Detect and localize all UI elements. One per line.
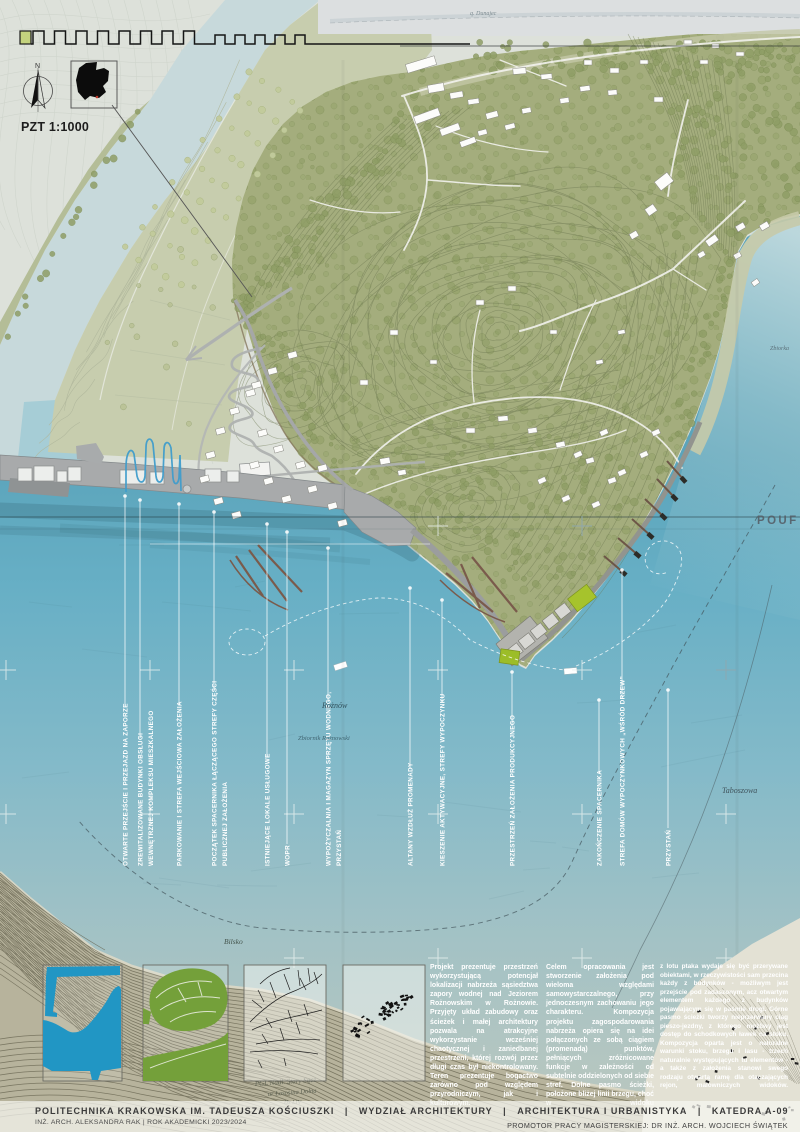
svg-text:ZREWITALIZOWANE BUDYNKI OBSŁUG: ZREWITALIZOWANE BUDYNKI OBSŁUGI — [137, 733, 144, 866]
svg-text:Zbiornik Rożnowski: Zbiornik Rożnowski — [298, 735, 350, 742]
svg-text:PZT 1:1000: PZT 1:1000 — [21, 120, 89, 134]
svg-text:PARKOWANIE I STREFA WEJŚCIOWA: PARKOWANIE I STREFA WEJŚCIOWA ZAŁOŻENIA — [174, 701, 183, 866]
svg-text:OTWARTE PRZEJŚCIE I PRZEJAZD N: OTWARTE PRZEJŚCIE I PRZEJAZD NA ZAPORZE — [120, 703, 129, 866]
svg-text:ISTNIEJĄCE LOKALE USŁUGOWE: ISTNIEJĄCE LOKALE USŁUGOWE — [264, 753, 271, 866]
svg-text:N: N — [35, 63, 40, 70]
svg-text:STREFA DOMÓW WYPOCZYNKOWYCH „W: STREFA DOMÓW WYPOCZYNKOWYCH „WŚRÓD DRZEW… — [617, 676, 626, 866]
svg-text:Rożnów: Rożnów — [321, 701, 348, 710]
svg-text:KIESZENIE AKTYWACYJNE, STREFY: KIESZENIE AKTYWACYJNE, STREFY WYPOCZYNKU — [439, 693, 446, 866]
svg-text:PRZYSTAŃ: PRZYSTAŃ — [334, 830, 343, 866]
svg-text:Taboszowa: Taboszowa — [722, 786, 757, 795]
svg-text:WYPOŻYCZALNIA I MAGAZYN SPRZĘT: WYPOŻYCZALNIA I MAGAZYN SPRZĘTU WODNEGO, — [324, 692, 332, 866]
svg-text:q. Dunajec: q. Dunajec — [470, 11, 497, 17]
svg-text:Bilsko: Bilsko — [224, 937, 243, 946]
svg-text:WOPR: WOPR — [284, 845, 291, 866]
svg-text:PRZYSTAŃ: PRZYSTAŃ — [663, 830, 672, 866]
svg-text:ALTANY WZDŁUŻ PROMENADY: ALTANY WZDŁUŻ PROMENADY — [406, 762, 414, 866]
svg-text:POUF: POUF — [757, 515, 799, 527]
svg-text:WEWNĘTRZNEJ KOMPLEKSU MIESZKAL: WEWNĘTRZNEJ KOMPLEKSU MIESZKALNEGO — [148, 710, 155, 866]
svg-text:PRZESTRZEŃ ZAŁOŻENIA PRODUKCYJ: PRZESTRZEŃ ZAŁOŻENIA PRODUKCYJNEGO — [507, 715, 516, 866]
svg-text:ZAKOŃCZENIE SPACERNIKA: ZAKOŃCZENIE SPACERNIKA — [594, 770, 603, 866]
svg-text:PUBLICZNEJ ZAŁOŻENIA: PUBLICZNEJ ZAŁOŻENIA — [221, 782, 229, 866]
svg-text:POCZĄTEK SPACERNIKA ŁĄCZĄCEGO: POCZĄTEK SPACERNIKA ŁĄCZĄCEGO STREFY CZĘ… — [209, 681, 218, 866]
svg-text:Zbiorka: Zbiorka — [770, 346, 789, 352]
